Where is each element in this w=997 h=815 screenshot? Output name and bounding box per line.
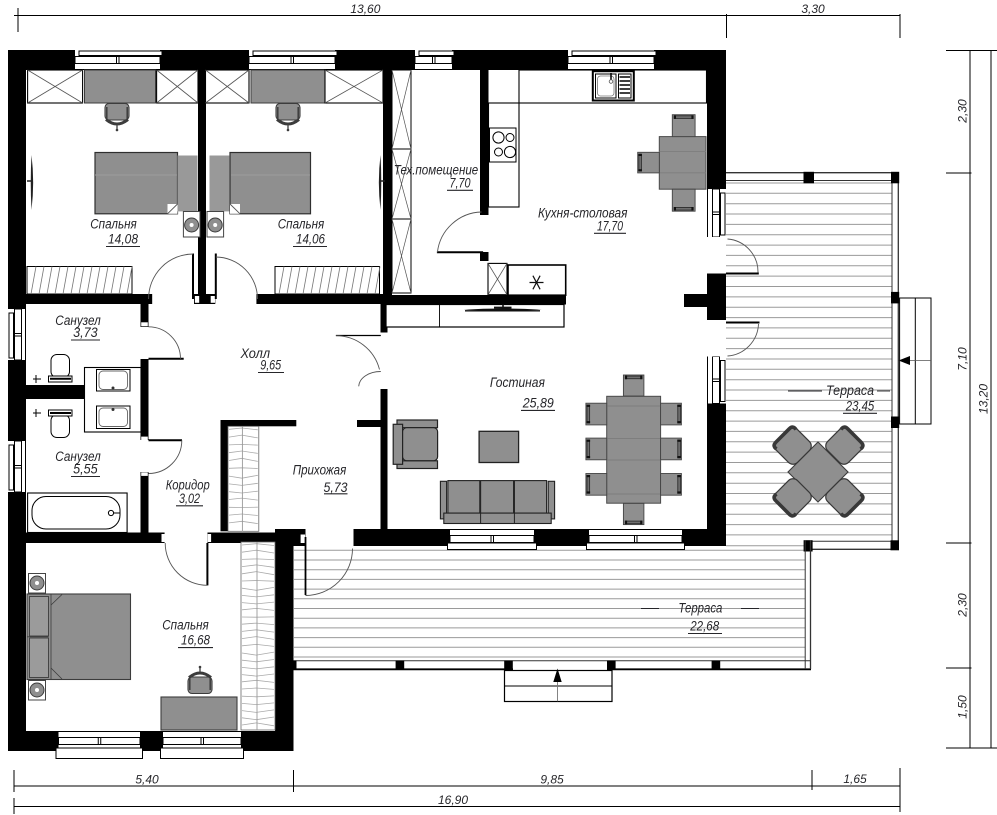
svg-text:14,08: 14,08 — [108, 232, 138, 247]
svg-text:Спальня: Спальня — [90, 217, 137, 232]
svg-text:5,73: 5,73 — [324, 480, 348, 495]
svg-text:25,89: 25,89 — [522, 395, 554, 410]
svg-text:2,30: 2,30 — [956, 99, 970, 124]
svg-text:Гостиная: Гостиная — [490, 375, 545, 390]
svg-text:16,90: 16,90 — [438, 793, 468, 807]
svg-text:2,30: 2,30 — [956, 593, 970, 618]
svg-text:17,70: 17,70 — [597, 218, 623, 233]
svg-text:14,06: 14,06 — [296, 232, 325, 247]
svg-text:1,50: 1,50 — [956, 695, 970, 719]
svg-text:13,60: 13,60 — [350, 2, 380, 16]
svg-text:5,55: 5,55 — [73, 462, 98, 477]
svg-text:Спальня: Спальня — [162, 618, 209, 633]
svg-text:9,65: 9,65 — [260, 358, 281, 373]
svg-text:13,20: 13,20 — [977, 384, 991, 414]
svg-text:3,02: 3,02 — [179, 491, 200, 506]
svg-text:5,40: 5,40 — [135, 773, 159, 787]
svg-text:7,10: 7,10 — [956, 347, 970, 371]
svg-text:22,68: 22,68 — [689, 619, 719, 634]
svg-text:23,45: 23,45 — [845, 398, 875, 413]
svg-text:Спальня: Спальня — [278, 217, 325, 232]
svg-text:7,70: 7,70 — [450, 175, 471, 190]
svg-text:Прихожая: Прихожая — [293, 463, 347, 478]
svg-text:1,65: 1,65 — [843, 772, 867, 786]
svg-text:16,68: 16,68 — [181, 633, 210, 648]
svg-text:3,30: 3,30 — [801, 2, 825, 16]
svg-text:Терраса: Терраса — [678, 601, 722, 616]
svg-text:3,73: 3,73 — [73, 325, 98, 340]
svg-text:Терраса: Терраса — [826, 383, 874, 398]
svg-text:9,85: 9,85 — [540, 773, 564, 787]
